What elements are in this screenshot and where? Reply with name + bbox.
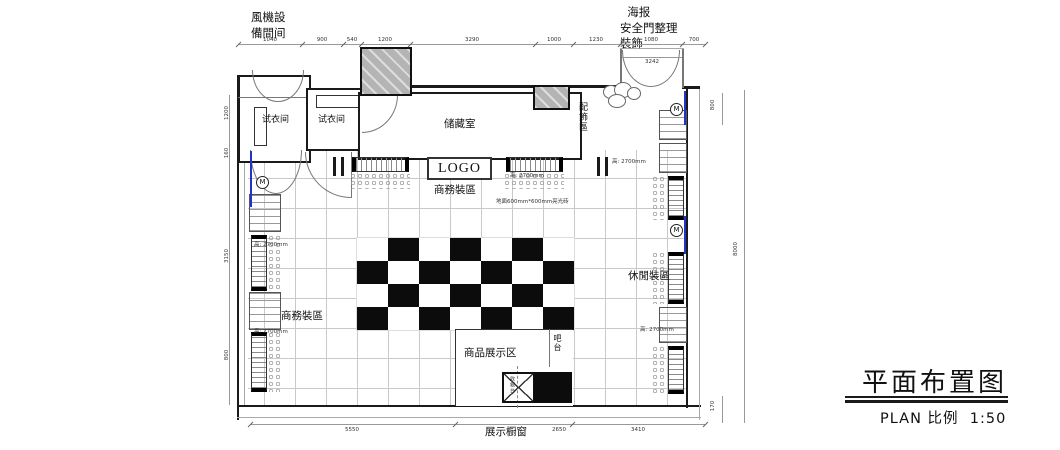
hanger-coil-strip: [652, 176, 666, 220]
dim-value: 800: [710, 90, 716, 120]
entry-door-arc: [622, 50, 651, 87]
dim-value: 1040: [255, 37, 285, 43]
dim-value: 540: [337, 37, 367, 43]
dim-value: 700: [679, 37, 709, 43]
dim-value: 900: [307, 37, 337, 43]
fitting-room-bench: [316, 95, 359, 108]
dim-line-top: [238, 44, 706, 45]
clothes-rack: [251, 332, 267, 392]
dim-value: 170: [710, 391, 716, 421]
display-window-label: 展示橱窗: [485, 426, 527, 440]
shelf-unit: [659, 143, 687, 173]
mirror-symbol: M: [256, 176, 269, 189]
plant-icon: [627, 87, 641, 100]
sheet-scale: PLAN 比例 1:50: [880, 407, 1006, 428]
plant-icon: [608, 94, 626, 108]
dim-line-entry: [622, 57, 682, 58]
accessories-zone-label: 配飾區: [576, 102, 589, 158]
dim-tick: [703, 422, 709, 428]
column-hatched-large: [360, 47, 412, 96]
hanger-coil-strip: [268, 332, 282, 392]
casual-zone-label: 休閒裝區: [628, 270, 670, 284]
dim-value: 3290: [457, 37, 487, 43]
logo-signage-box: LOGO: [427, 157, 492, 180]
wall-stub: [333, 157, 336, 176]
mirror-strip: [684, 91, 686, 125]
dim-line-right-short: [722, 93, 723, 125]
clothes-rack: [352, 157, 409, 172]
dim-value: 1200: [370, 37, 400, 43]
business-zone-label: 商務裝區: [281, 310, 323, 324]
dim-value: 1200: [224, 98, 230, 128]
wall-right-outer-line: [699, 86, 700, 420]
column-hatched-small: [533, 85, 570, 110]
dim-value: 1230: [581, 37, 611, 43]
clothes-rack: [668, 252, 684, 304]
mirror-symbol: M: [670, 224, 683, 237]
dim-value-entry: 3242: [637, 59, 667, 65]
wall-top-segment: [410, 85, 535, 88]
wall-stub: [597, 157, 600, 176]
dim-line-bottom: [250, 424, 705, 425]
fitting-room-label: 试衣间: [262, 112, 289, 125]
rack-height-note: 高: 2700mm: [254, 240, 288, 248]
display-zone-label: 商品展示区: [464, 347, 517, 361]
dim-value: 800: [224, 340, 230, 370]
floor-finish-note: 地面600mm*600mm亮光砖: [496, 197, 569, 205]
clothes-rack: [668, 176, 684, 220]
clothes-rack: [506, 157, 563, 172]
wall-stub: [341, 157, 344, 176]
cashier-label: 收銀台: [509, 376, 516, 394]
mirror-strip: [250, 151, 252, 207]
wall-left-inner-line: [244, 162, 245, 405]
mirror-strip: [684, 216, 686, 254]
title-underline-1: [845, 396, 1008, 398]
dim-value: 1000: [539, 37, 569, 43]
dim-value: 2650: [544, 427, 574, 433]
rack-height-note: 高: 2700mm: [510, 171, 544, 179]
storage-room-label: 储藏室: [444, 118, 476, 132]
business-zone-label: 商務裝區: [434, 184, 476, 198]
dim-value: 3410: [623, 427, 653, 433]
dim-line-right-long: [744, 90, 745, 423]
hanger-coil-strip: [652, 346, 666, 394]
wall-top-right-corner: [682, 86, 700, 89]
title-underline-2: [845, 400, 1008, 403]
dim-value: 160: [224, 138, 230, 168]
fitting-room-label: 试衣间: [318, 112, 345, 125]
clothes-rack: [668, 346, 684, 394]
floorplan-sheet: 试衣间 试衣间 储藏室 LOGO M M M: [0, 0, 1060, 450]
fitting-room-top-wall: [238, 97, 306, 98]
dim-value: 5550: [337, 427, 367, 433]
dim-value: 3150: [224, 241, 230, 271]
entry-door-arc: [651, 50, 680, 87]
rack-height-note: 高: 2700mm: [254, 327, 288, 335]
wall-stub: [605, 157, 608, 176]
mirror-symbol: M: [670, 103, 683, 116]
hanger-coil-strip: [350, 173, 410, 189]
bar-counter-label: 吧台: [552, 334, 563, 352]
cashier-desk-crossed: [502, 372, 535, 403]
bar-divider-line: [549, 329, 550, 367]
sheet-title: 平面布置图: [862, 362, 1007, 399]
dim-value: 1080: [636, 37, 666, 43]
entry-jamb-right: [682, 48, 684, 88]
rack-height-note: 高: 2700mm: [640, 325, 674, 333]
cashier-desk-solid: [534, 372, 572, 403]
dim-value: 8000: [733, 234, 739, 264]
shelf-unit: [249, 194, 281, 232]
shelf-unit: [249, 292, 281, 330]
dim-line-right-short2: [722, 396, 723, 423]
checkerboard-floor-pattern: [357, 238, 574, 330]
rack-height-note: 高: 2700mm: [612, 157, 646, 165]
wall-bottom-outer-line: [237, 417, 701, 418]
